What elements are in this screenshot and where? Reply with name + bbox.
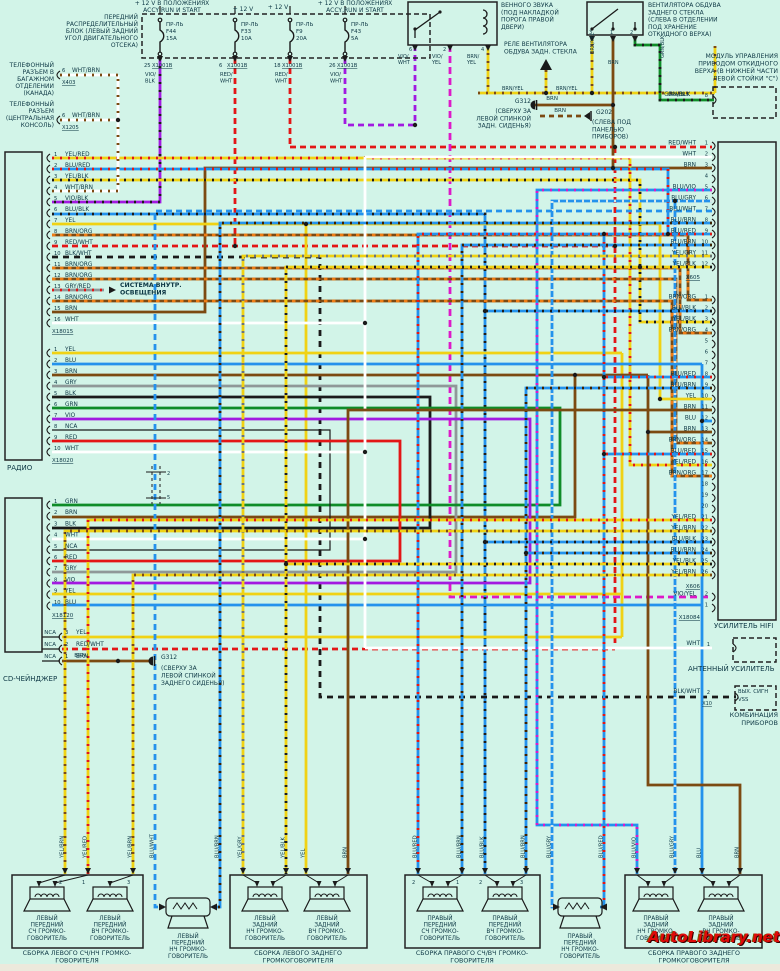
label: ПЕРЕДНИЙРАСПРЕДЕЛИТЕЛЬНЫЙБЛОК (ЛЕВЫЙ ЗАД… [65, 14, 138, 49]
pin-wire-label: BRN/ORG [65, 229, 93, 235]
label: 1 [610, 30, 613, 36]
pin-bracket [47, 568, 50, 576]
pin-wire-label: BLU/BRN [671, 240, 696, 246]
pin-number: 3 [54, 521, 57, 527]
bottom-wire-label: BLU/BRN [457, 835, 463, 858]
pin-number: 26 [329, 63, 336, 69]
wire-label: BRN/YEL [556, 86, 578, 92]
pin-wire-label: WHT [65, 317, 79, 323]
pin-number: 2 [54, 510, 57, 516]
bottom-wire-label: BLU/VIO [632, 837, 638, 858]
connector-id: X1001B [282, 63, 303, 69]
pin-wire-label: YEL [64, 589, 76, 595]
pin-bracket [47, 602, 50, 610]
pin-wire-label: YEL/BLK [672, 262, 697, 268]
fuse-id: F43 [351, 29, 362, 35]
arrow-down-icon [255, 881, 260, 887]
pin-number: 19 [701, 493, 708, 499]
speaker-cone [24, 899, 70, 911]
junction-dot [116, 659, 120, 663]
speaker-cone [304, 899, 350, 911]
pin-bracket [712, 307, 715, 315]
pin-bracket [712, 538, 715, 546]
pin-number: 2 [705, 592, 708, 598]
pin-bracket [712, 472, 715, 480]
pin-number: 10 [54, 600, 61, 606]
speaker-cone [633, 899, 679, 911]
junction-dot [304, 222, 308, 226]
junction-dot [646, 430, 650, 434]
fuse-terminal [233, 52, 237, 56]
junction-dot [363, 321, 367, 325]
pin-number: 5 [54, 544, 57, 550]
pin-number: 7 [54, 566, 57, 572]
junction-dot [666, 232, 670, 236]
fuse-icon [290, 22, 294, 52]
pin-number: 18 [274, 63, 281, 69]
pin-wire-label: BLU/GRY [671, 196, 696, 202]
arrow-down-icon [415, 868, 421, 874]
fuse-id: F44 [166, 29, 177, 35]
junction-dot [483, 309, 487, 313]
speaker-label: ПРАВЫЙПЕРЕДНИЙВЧ ГРОМКО-ГОВОРИТЕЛЬ [485, 915, 525, 942]
pin-wire-label: RED [65, 555, 78, 561]
pin-number: 23 [701, 537, 708, 543]
speaker-cone [87, 899, 133, 911]
pin-bracket [59, 645, 62, 653]
pin-wire-label: BRN/ORG [65, 262, 93, 268]
fuse-terminal [158, 18, 162, 22]
connector-id: X1001B [337, 63, 358, 69]
pin-bracket [712, 417, 715, 425]
pin-bracket [712, 197, 715, 205]
pin-bracket [47, 535, 50, 543]
pin-number: 1 [54, 152, 57, 158]
arrow-down-icon [232, 56, 238, 62]
fuse-amps: 10A [241, 36, 252, 42]
pin-number: 9 [54, 240, 57, 246]
arrow-down-icon [283, 868, 289, 874]
pin-bracket [712, 516, 715, 524]
pin-bracket [712, 450, 715, 458]
speaker-icon [30, 887, 64, 899]
pin-bracket [59, 657, 62, 665]
junction-dot [590, 91, 594, 95]
label: 2 [167, 471, 170, 477]
pin-number: 26 [701, 570, 708, 576]
pin-number: 5 [54, 391, 57, 397]
pin-number: 6 [219, 63, 222, 69]
bottom-wire-label: BLU/WHT [150, 833, 156, 858]
pin-bracket [712, 395, 715, 403]
pin-bracket [712, 560, 715, 568]
pin-number: 10 [701, 240, 708, 246]
junction-dot [233, 244, 237, 248]
label: 6 [409, 47, 412, 53]
pin-bracket [47, 154, 50, 162]
pin-number: 6 [62, 68, 65, 74]
speaker-coil [709, 894, 733, 897]
arrow-down-icon [632, 36, 638, 42]
pin-wire-label: WHT [686, 641, 700, 647]
pin-bracket [712, 175, 715, 183]
pin-bracket [47, 209, 50, 217]
pin-number: 13 [54, 284, 61, 290]
fuse-terminal [343, 52, 347, 56]
pin-wire-label: VIO/YEL [673, 592, 696, 598]
speaker-icon [488, 887, 522, 899]
pin-wire-label: YEL [64, 347, 76, 353]
pin-number: 11 [54, 262, 61, 268]
speaker-icon [93, 887, 127, 899]
arrow-down-icon [737, 868, 743, 874]
pin-bracket [47, 579, 50, 587]
arrow-down-icon [37, 881, 42, 887]
bottom-wire-label: BLU [697, 848, 703, 858]
pin-bracket [47, 349, 50, 357]
pin-wire-label: WHT/BRN [72, 68, 100, 74]
fuse-amps: 5A [351, 36, 358, 42]
pin-wire-label: VIO/BLK [145, 72, 156, 85]
subwoofer-coil [565, 903, 589, 909]
fuse-name: ПР-ЛЬ [166, 22, 184, 28]
connector-id: X403 [62, 80, 75, 86]
pin-bracket [47, 176, 50, 184]
pin-number: 10 [54, 251, 61, 257]
pin-wire-label: WHT [65, 533, 79, 539]
fuse-amps: 15A [166, 36, 177, 42]
pin-number: 1 [707, 642, 710, 648]
label: ВЕНТИЛЯТОРА ОБДУВАЗАДНЕГО СТЕКЛА(СЛЕВА В… [648, 2, 722, 38]
arrow-down-icon [610, 36, 616, 42]
pin-bracket [712, 483, 715, 491]
pin-bracket [57, 116, 60, 124]
pin-bracket [47, 198, 50, 206]
pin-wire-label: BRN/ORG [669, 471, 697, 477]
pin-wire-label: WHT/BRN [72, 113, 100, 119]
cd-changer-box [5, 498, 42, 652]
pin-wire-label: RED/WHT [220, 72, 233, 85]
speaker-coil [428, 894, 452, 897]
pin-wire-label: RED [65, 435, 78, 441]
arrow-down-icon [523, 868, 529, 874]
pin-bracket [47, 187, 50, 195]
pin-bracket [47, 426, 50, 434]
label: GRN/BLK [660, 35, 666, 58]
subwoofer-coil [173, 903, 197, 909]
pin-number: 13 [701, 427, 708, 433]
pin-wire-label: BRN/ORG [669, 438, 697, 444]
pin-wire-label: BRN [65, 510, 77, 516]
pin-wire-label: BRN [684, 427, 696, 433]
connector-id: X1001B [152, 63, 173, 69]
hifi-amplifier-box [718, 142, 776, 620]
speaker-icon [248, 887, 282, 899]
pin-bracket [47, 591, 50, 599]
pin-wire-label: BLK [65, 521, 76, 527]
bottom-wire-label: BLU/BRN [215, 835, 221, 858]
pin-wire-label: BLU [65, 600, 76, 606]
pin-number: 8 [54, 577, 57, 583]
bottom-wire-label: BRN [735, 847, 741, 858]
fuse-terminal [233, 18, 237, 22]
pin-bracket [712, 296, 715, 304]
junction-dot [524, 551, 528, 555]
arrow-down-icon [342, 56, 348, 62]
pin-wire-label: YEL/BLK [64, 174, 89, 180]
arrow-right-icon [159, 904, 166, 911]
arrow-down-icon [53, 881, 58, 887]
fuse-icon [235, 22, 239, 52]
pin-wire-label: YEL [64, 218, 76, 224]
pin-wire-label: BLU/BRN [671, 218, 696, 224]
pin-wire-label: WHT [682, 152, 696, 158]
label: BRN [74, 653, 86, 659]
label: (СЛЕВА ПОДПАНЕЛЬЮПРИБОРОВ) [592, 119, 631, 141]
pin-number: 6 [54, 207, 57, 213]
junction-dot [613, 145, 617, 149]
pin-wire-label: RED/WHT [76, 642, 104, 648]
junction-dot [613, 244, 617, 248]
pin-bracket [712, 318, 715, 326]
pin-wire-label: GRY [65, 566, 77, 572]
label: (СВЕРХУ ЗАЛЕВОЙ СПИНКОЙЗАДН. СИДЕНЬЯ) [476, 108, 532, 130]
pin-number: 4 [705, 174, 709, 180]
pin-number: 3 [520, 880, 523, 886]
junction-dot [573, 373, 577, 377]
junction-dot [658, 397, 662, 401]
arrow-down-icon [495, 881, 500, 887]
connector-id: X10 [702, 701, 712, 707]
label: 4 [481, 47, 484, 53]
label: ВЫХ. СИГНVSS [738, 689, 768, 703]
pin-wire-label: BLU/RED [671, 372, 697, 378]
pin-bracket [47, 220, 50, 228]
pin-number: 1 [54, 347, 57, 353]
wire-blk [52, 397, 430, 528]
pin-bracket [47, 546, 50, 554]
label: X606 [686, 584, 701, 590]
speaker-icon [310, 887, 344, 899]
pin-number: 1 [82, 880, 85, 886]
fuse-terminal [343, 18, 347, 22]
pin-bracket [712, 142, 715, 150]
pin-wire-label: BLU/VIO [673, 185, 697, 191]
arrow-down-icon [662, 881, 667, 887]
pin-number: 12 [701, 262, 708, 268]
arrow-down-icon [317, 881, 322, 887]
bottom-wire-label: BRN [343, 847, 349, 858]
pin-wire-label: BRN/ORG [65, 295, 93, 301]
nca-label: NCA [44, 654, 56, 660]
pin-bracket [47, 448, 50, 456]
pin-wire-label: BLU/BLK [65, 207, 89, 213]
pin-wire-label: VIO/WHT [330, 72, 343, 85]
arrow-right-icon [553, 904, 560, 911]
pin-wire-label: RED/WHT [275, 72, 288, 85]
pin-number: 25 [144, 63, 151, 69]
wire-vio [52, 419, 530, 583]
bottom-wire-label: YEL/BRN [60, 836, 66, 859]
pin-wire-label: BLU/WHT [669, 207, 696, 213]
pin-wire-label: BRN [65, 306, 77, 312]
pin-wire-label: WHT [65, 446, 79, 452]
pin-bracket [712, 241, 715, 249]
bottom-wire-label: BLU/RED [599, 835, 605, 858]
bottom-wire-label: BLU/RED [413, 835, 419, 858]
label: VIO/WHT [398, 54, 411, 66]
fuse-icon [345, 22, 349, 52]
wire-blu-wht [155, 211, 712, 907]
junction-dot [638, 265, 642, 269]
label: BRN [546, 96, 558, 102]
pin-wire-label: YEL/RED [670, 460, 696, 466]
pin-number: 6 [62, 113, 65, 119]
wire-gry [52, 386, 456, 572]
connector-id: X1205 [62, 125, 79, 131]
arrow-down-icon [727, 881, 732, 887]
pin-wire-label: BLU/BLK [672, 306, 696, 312]
pin-bracket [712, 439, 715, 447]
pin-number: 22 [701, 526, 708, 532]
pin-wire-label: BLU/BLK [672, 537, 696, 543]
pin-number: 2 [705, 306, 708, 312]
speaker-cone [242, 899, 288, 911]
pin-number: 12 [54, 273, 61, 279]
pin-number: 1 [65, 654, 68, 660]
label: АНТЕННЫЙ УСИЛИТЕЛЬ [688, 664, 775, 673]
motor-switch [592, 9, 635, 29]
pin-bracket [712, 208, 715, 216]
pin-bracket [57, 71, 60, 79]
pin-wire-label: YEL/RED [670, 515, 696, 521]
arrow-down-icon [485, 45, 491, 51]
pin-number: 2 [707, 690, 710, 696]
pin-bracket [47, 523, 50, 531]
label: G202 [596, 109, 612, 116]
bottom-wire-label: YEL [301, 849, 307, 859]
pin-bracket [712, 384, 715, 392]
pin-wire-label: BRN/ORG [65, 273, 93, 279]
bottom-wire-label: BLU/GRY [547, 835, 553, 858]
speaker-cone [482, 899, 528, 911]
pin-wire-label: BLU [65, 358, 76, 364]
pin-bracket [712, 428, 715, 436]
relay-contact [438, 10, 441, 13]
pin-wire-label: BLK [65, 391, 76, 397]
pin-number: 11 [701, 251, 708, 257]
fuse-amps: 20A [296, 36, 307, 42]
arrow-down-icon [130, 868, 136, 874]
arrow-down-icon [430, 881, 435, 887]
pin-number: 8 [705, 372, 708, 378]
label: 2 [443, 47, 446, 53]
pin-bracket [47, 382, 50, 390]
arrow-up-icon [540, 59, 552, 70]
pin-bracket [712, 461, 715, 469]
pin-wire-label: YEL/BLK [672, 317, 697, 323]
pin-wire-label: BRN [65, 369, 77, 375]
pin-number: 15 [701, 449, 708, 455]
pin-bracket [47, 286, 50, 294]
label: ПРИБОРОВ [741, 719, 778, 727]
label: BRN [608, 60, 619, 66]
pin-number: 12 [701, 416, 708, 422]
arrow-down-icon [345, 868, 351, 874]
subwoofer-cone [168, 916, 208, 928]
pin-number: 1 [705, 141, 708, 147]
speaker-coil [253, 894, 277, 897]
label: + 12 V [268, 4, 289, 11]
bottom-wire-label: BLU/BLK [480, 836, 486, 858]
pin-number: 6 [705, 350, 708, 356]
pin-bracket [712, 571, 715, 579]
convertible-top-module-box [713, 87, 776, 118]
fuse-id: F9 [296, 29, 303, 35]
pin-wire-label: GRY [65, 380, 77, 386]
junction-dot [602, 375, 606, 379]
motor-contact [633, 27, 636, 30]
label: ТЕЛЕФОННЫЙРАЗЪЕМ(ЦЕНТРАЛЬНАЯКОНСОЛЬ) [6, 101, 54, 129]
ground-icon [584, 112, 590, 120]
speaker-icon [704, 887, 738, 899]
nca-label: NCA [44, 630, 56, 636]
assembly-label: СБОРКА ЛЕВОГО ЗАДНЕГОГРОМКОГОВОРИТЕЛЯ [254, 950, 342, 965]
label: X605 [686, 275, 701, 281]
pin-number: 1 [456, 880, 459, 886]
pin-number: 3 [54, 369, 57, 375]
arrow-down-icon [459, 868, 465, 874]
arrow-down-icon [240, 868, 246, 874]
pin-bracket [47, 371, 50, 379]
fuse-icon [160, 22, 164, 52]
speaker-coil [493, 894, 517, 897]
label: G312 [515, 98, 531, 105]
speaker-cone [417, 899, 463, 911]
pin-number: 7 [54, 413, 57, 419]
pin-bracket [47, 242, 50, 250]
junction-dot [611, 166, 615, 170]
junction-dot [544, 91, 548, 95]
pin-bracket [712, 164, 715, 172]
label: X18015 [52, 329, 74, 335]
pin-number: 18 [701, 482, 708, 488]
pin-bracket [712, 252, 715, 260]
pin-number: 9 [54, 435, 57, 441]
pin-bracket [712, 549, 715, 557]
pin-wire-label: GRN [65, 499, 78, 505]
pin-wire-label: BRN [684, 163, 696, 169]
pin-wire-label: BLU/RED [671, 229, 697, 235]
relay-switch [415, 12, 440, 38]
assembly-label: СБОРКА ПРАВОГО ЗАДНЕГОГРОМКОГОВОРИТЕЛЯ [648, 950, 740, 965]
pin-bracket [47, 231, 50, 239]
horn-relay-box [408, 2, 497, 45]
ground-icon [531, 101, 536, 110]
pin-number: 9 [705, 229, 708, 235]
pin-number: 2 [59, 880, 62, 886]
bottom-wire-label: YEL/RED [83, 836, 89, 859]
connector-id: X1001B [227, 63, 248, 69]
pin-number: 11 [701, 405, 708, 411]
arrow-down-icon [672, 868, 678, 874]
pin-number: 3 [705, 163, 708, 169]
label: BRN [554, 108, 566, 114]
pin-bracket [59, 633, 62, 641]
watermark: AutoLibrary.net [648, 928, 780, 946]
speaker-coil [35, 894, 59, 897]
pin-wire-label: GRY/RED [65, 284, 91, 290]
